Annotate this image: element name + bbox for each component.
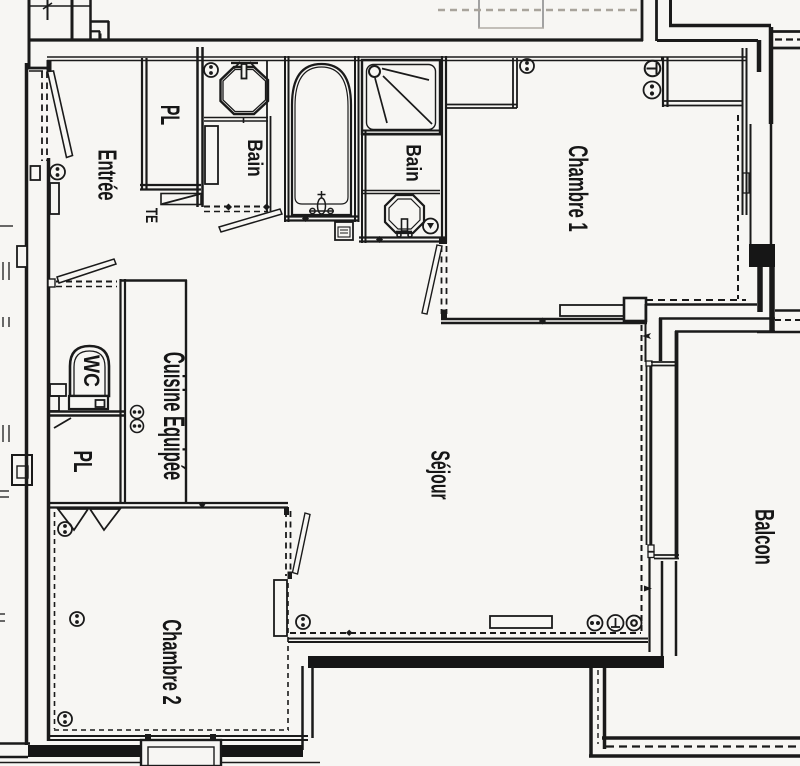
svg-text:TE: TE	[141, 208, 160, 223]
svg-text:Chambre 1: Chambre 1	[563, 145, 593, 231]
svg-text:Séjour: Séjour	[426, 450, 455, 500]
svg-text:WC: WC	[79, 355, 104, 387]
svg-text:Cuisine Equipée: Cuisine Equipée	[157, 352, 190, 480]
svg-text:Bain: Bain	[401, 144, 424, 181]
svg-text:Chambre 2: Chambre 2	[157, 619, 187, 704]
svg-text:Entrée: Entrée	[93, 150, 123, 201]
svg-text:PL: PL	[155, 105, 186, 125]
svg-text:Bain: Bain	[243, 139, 266, 176]
svg-text:Balcon: Balcon	[749, 509, 779, 565]
svg-text:PL: PL	[68, 451, 98, 473]
